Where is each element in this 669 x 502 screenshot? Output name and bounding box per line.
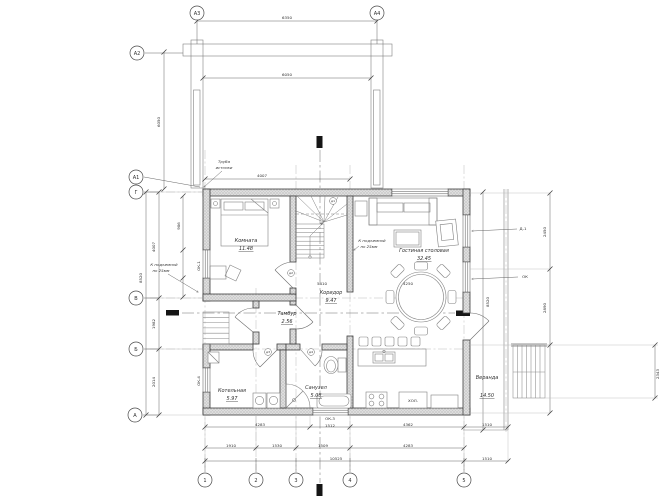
- door-tag-label: д2: [289, 271, 293, 275]
- dimension-label: 2450: [542, 227, 547, 237]
- dimension-label: 4007: [257, 173, 267, 178]
- dimension-label: 6050: [156, 117, 161, 127]
- dimension-label: ОК: [522, 274, 528, 279]
- dimension-label: 6350: [282, 15, 292, 20]
- axis-bubble-label: А2: [134, 51, 141, 57]
- room-area: 14.50: [480, 393, 494, 399]
- dimension-label: 10525: [330, 456, 343, 461]
- axis-bubble-label: Г: [134, 190, 137, 196]
- furniture-boiler: [208, 352, 280, 408]
- axis-bubble-label: А3: [194, 11, 201, 17]
- door-tag-label: д1: [331, 199, 335, 203]
- room-name: Санузел: [305, 385, 328, 391]
- furniture-living: [355, 198, 458, 335]
- dimension-label: 2343: [655, 369, 660, 379]
- staircase: [296, 196, 347, 258]
- note-label: К подъемной: [150, 262, 178, 267]
- axis-bubble-label: 4: [348, 478, 351, 484]
- room-name: Гостиная столовая: [399, 248, 449, 254]
- pergola-structure: [183, 40, 392, 188]
- floor-plan-sheet: 6350605060504007906400719822014852054104…: [0, 0, 669, 502]
- dimension-label: ОК-4: [196, 376, 201, 386]
- room-area: 5.97: [227, 396, 239, 402]
- note-label: Труба: [218, 159, 231, 164]
- dimension-label: 4283: [403, 443, 413, 448]
- dimension-label: 1530: [272, 443, 282, 448]
- dimension-label: 906: [176, 222, 181, 230]
- axis-bubble-label: А4: [374, 11, 381, 17]
- dimension-label: Д-1: [520, 226, 527, 231]
- dimension-label: 4007: [151, 242, 156, 252]
- dimension-label: 2014: [151, 377, 156, 387]
- room-name: Котельная: [218, 388, 246, 394]
- dimension-label: ХОЛ.: [408, 398, 418, 403]
- dimension-label: 2890: [542, 303, 547, 313]
- dimension-label: 1512: [325, 423, 335, 428]
- dimension-label: 1510: [482, 456, 492, 461]
- dimension-label: ОК-3: [325, 416, 335, 421]
- porch-steps: [203, 312, 229, 344]
- furniture-bathroom: [286, 357, 351, 409]
- note-label: К подъемной: [358, 238, 386, 243]
- room-area: 9.47: [326, 298, 338, 304]
- dimension-label: 4283: [255, 422, 265, 427]
- axis-bubble-label: А: [133, 413, 137, 419]
- room-name: Веранда: [476, 375, 499, 381]
- dimension-label: 1910: [226, 443, 236, 448]
- room-name: Коридор: [320, 290, 343, 296]
- dimension-label: 1510: [482, 422, 492, 427]
- dimension-label: 1509: [318, 443, 328, 448]
- room-name: Тамбур: [277, 311, 296, 317]
- dimension-label: 8520: [485, 297, 490, 307]
- dimension-label: 8520: [138, 273, 143, 283]
- room-name: Комната: [235, 238, 258, 244]
- room-area: 32.45: [417, 256, 431, 262]
- axis-bubble-label: В: [134, 296, 138, 302]
- note-label: истопки: [216, 165, 233, 170]
- dimension-label: 5410: [317, 281, 327, 286]
- room-area: 5.08: [311, 393, 322, 399]
- note-label: по 25мм: [361, 244, 378, 249]
- floor-plan-canvas: 6350605060504007906400719822014852054104…: [0, 0, 669, 502]
- room-area: 2.56: [282, 319, 293, 325]
- door-tag-label: д3: [266, 350, 270, 354]
- note-label: по 25мм: [153, 268, 170, 273]
- axis-bubble-label: 2: [254, 478, 257, 484]
- veranda: [463, 189, 547, 432]
- dimension-label: ОК-1: [196, 261, 201, 271]
- dimension-label: 6050: [282, 72, 292, 77]
- axis-bubble-label: 1: [203, 478, 206, 484]
- axis-bubble-label: Б: [134, 347, 138, 353]
- axis-bubble-label: А1: [133, 175, 140, 181]
- room-area: 11.48: [239, 246, 253, 252]
- axis-bubble-label: 5: [462, 478, 465, 484]
- door-tag-label: д4: [309, 350, 313, 354]
- dimension-label: 4362: [403, 422, 413, 427]
- interior-walls: [280, 196, 353, 408]
- axis-bubble-label: 3: [294, 478, 297, 484]
- dimension-label: 1982: [151, 319, 156, 329]
- dimension-label: 4250: [403, 281, 413, 286]
